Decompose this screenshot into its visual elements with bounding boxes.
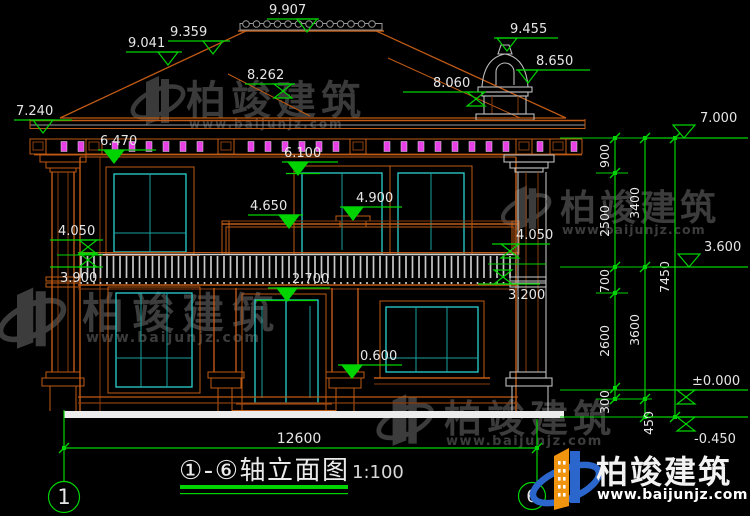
ridge-tile xyxy=(369,21,376,28)
elevation-value: 8.650 xyxy=(536,54,573,69)
elevation-value: 9.041 xyxy=(128,36,165,51)
rafter-tail-block xyxy=(163,142,169,152)
eave-corbel xyxy=(350,139,366,154)
elevation-value: 2.700 xyxy=(292,272,329,287)
dimension-value: 450 xyxy=(641,411,656,435)
ridge-tile xyxy=(274,21,281,28)
elevation-value: 4.900 xyxy=(356,191,393,206)
rafter-tail-block xyxy=(180,142,186,152)
ground-line xyxy=(64,411,564,418)
ridge-tile xyxy=(264,21,271,28)
dimension-value: 12600 xyxy=(277,431,322,447)
elevation-drawing: 柏竣建筑 www.baijunjz.com 柏竣建筑 www.baijunjz.… xyxy=(0,0,750,516)
ridge-tile xyxy=(348,21,355,28)
drawing-scale: 1:100 xyxy=(352,462,404,483)
dimension-value: 300 xyxy=(597,390,612,414)
rafter-tail-block xyxy=(418,142,424,152)
title-underline-thick xyxy=(180,485,348,489)
rafter-tail-block xyxy=(384,142,390,152)
ridge-tile xyxy=(327,21,334,28)
elevation-value: 9.907 xyxy=(269,3,306,18)
ridge-tile xyxy=(253,21,260,28)
eave-corbel xyxy=(218,139,234,154)
drawing-title: ①-⑥轴立面图 xyxy=(179,456,350,486)
watermark-url: www.baijunjz.com xyxy=(86,330,261,346)
elevation-value: 8.060 xyxy=(433,76,470,91)
elevation-value: 6.100 xyxy=(284,146,321,161)
eave-corbel xyxy=(550,139,566,154)
elevation-value: 8.262 xyxy=(247,68,284,83)
elevation-value: 9.359 xyxy=(170,25,207,40)
elevation-value: 4.650 xyxy=(250,199,287,214)
elevation-value: 9.455 xyxy=(510,22,547,37)
rafter-tail-block xyxy=(248,142,254,152)
elevation-value: 3.600 xyxy=(704,240,741,255)
watermark-url: www.baijunjz.com xyxy=(446,434,603,449)
rafter-tail-block xyxy=(469,142,475,152)
elevation-value: -0.450 xyxy=(694,432,736,447)
elevation-value: 3.200 xyxy=(508,288,545,303)
brand-logo: 柏竣建筑 www.baijunjz.com xyxy=(528,448,748,511)
rafter-tail-block xyxy=(401,142,407,152)
ridge-tile xyxy=(243,21,250,28)
ridge-tile xyxy=(358,21,365,28)
rafter-tail-block xyxy=(452,142,458,152)
elevation-value: 4.050 xyxy=(58,224,95,239)
logo-building-icon xyxy=(554,448,569,510)
title-underline-thin xyxy=(180,493,348,494)
rafter-tail-block xyxy=(571,142,577,152)
rafter-tail-block xyxy=(78,142,84,152)
rafter-tail-block xyxy=(435,142,441,152)
eave-corbel xyxy=(30,139,46,154)
elevation-value: 3.900 xyxy=(60,271,97,286)
brand-url: www.baijunjz.com xyxy=(597,487,748,503)
rafter-tail-block xyxy=(486,142,492,152)
ridge-tile xyxy=(285,21,292,28)
elevation-value: 0.600 xyxy=(360,349,397,364)
rafter-tail-block xyxy=(537,142,543,152)
dimension-value: 3400 xyxy=(627,187,642,219)
elevation-value: ±0.000 xyxy=(692,374,740,389)
watermark-url: www.baijunjz.com xyxy=(562,222,706,237)
rafter-tail-block xyxy=(503,142,509,152)
ridge-tile xyxy=(316,21,323,28)
elevation-value: 6.470 xyxy=(100,134,137,149)
cad-elevation-screenshot: 柏竣建筑 www.baijunjz.com 柏竣建筑 www.baijunjz.… xyxy=(0,0,750,516)
dimension-value: 2500 xyxy=(597,205,612,237)
dimension-value: 3600 xyxy=(627,314,642,346)
ridge-tile xyxy=(337,21,344,28)
rafter-tail-block xyxy=(61,142,67,152)
rafter-tail-block xyxy=(197,142,203,152)
elevation-value: 4.050 xyxy=(516,228,553,243)
rafter-tail-block xyxy=(265,142,271,152)
dimension-value: 700 xyxy=(597,269,612,293)
eave-corbel xyxy=(516,139,532,154)
dimension-value: 900 xyxy=(597,144,612,168)
elevation-value: 7.000 xyxy=(700,111,737,126)
rafter-tail-block xyxy=(333,142,339,152)
brand-name: 柏竣建筑 xyxy=(596,453,732,491)
dimension-value: 7450 xyxy=(657,261,672,293)
axis-bubble-1-label: 1 xyxy=(57,485,70,509)
elevation-value: 7.240 xyxy=(16,104,53,119)
dimension-value: 2600 xyxy=(597,325,612,357)
